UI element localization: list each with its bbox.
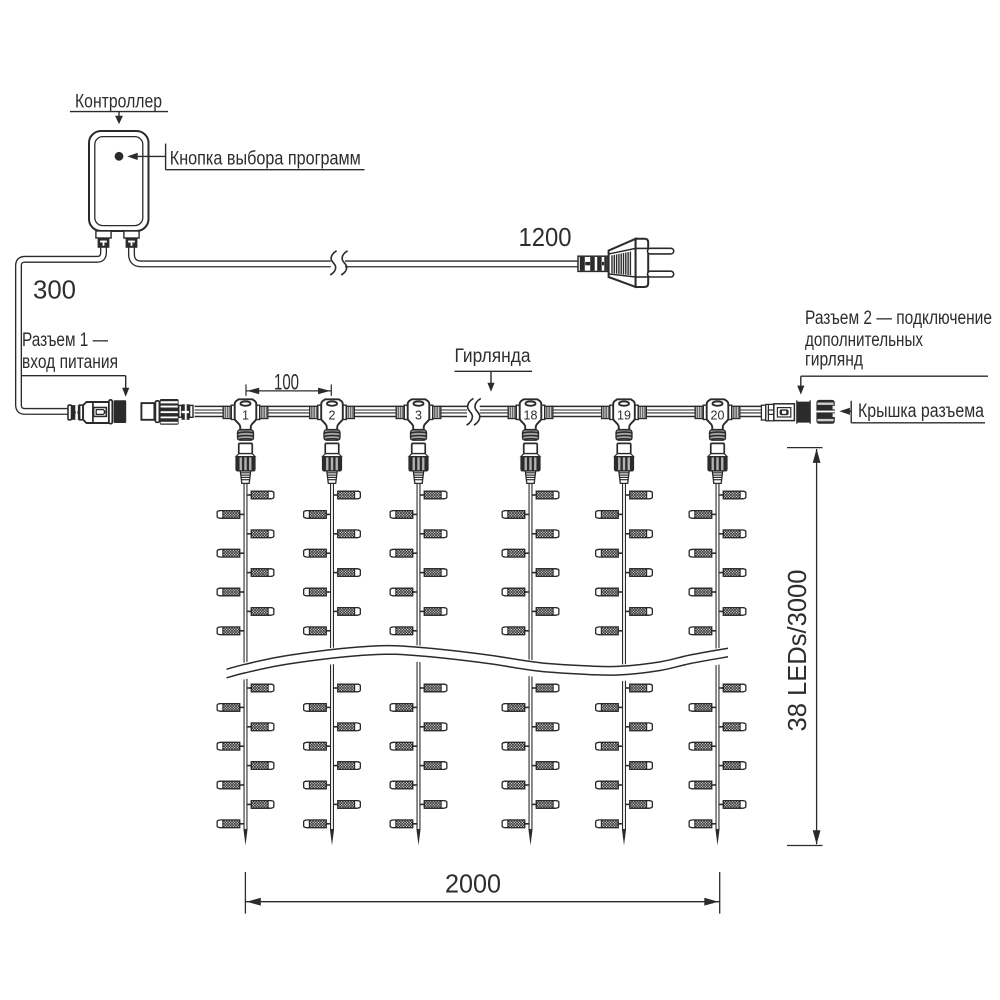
svg-text:гирлянд: гирлянд	[805, 350, 863, 371]
svg-text:Кнопка выбора программ: Кнопка выбора программ	[170, 148, 361, 169]
svg-text:1: 1	[242, 408, 249, 422]
svg-text:300: 300	[33, 274, 76, 304]
svg-text:дополнительных: дополнительных	[805, 330, 923, 351]
svg-text:38 LEDs/3000: 38 LEDs/3000	[782, 570, 812, 732]
svg-text:Контроллер: Контроллер	[75, 92, 162, 113]
svg-text:Разъем 1 —: Разъем 1 —	[22, 330, 108, 351]
svg-text:Гирлянда: Гирлянда	[455, 346, 531, 367]
svg-text:1200: 1200	[519, 222, 572, 252]
svg-text:20: 20	[711, 408, 725, 422]
svg-text:Разъем 2 — подключение: Разъем 2 — подключение	[805, 308, 992, 329]
svg-text:2000: 2000	[445, 869, 501, 899]
svg-text:18: 18	[524, 408, 538, 422]
svg-text:3: 3	[415, 408, 422, 422]
svg-text:19: 19	[617, 408, 631, 422]
svg-text:вход питания: вход питания	[22, 352, 118, 373]
svg-text:2: 2	[329, 408, 336, 422]
svg-text:Крышка разъема: Крышка разъема	[858, 401, 984, 422]
